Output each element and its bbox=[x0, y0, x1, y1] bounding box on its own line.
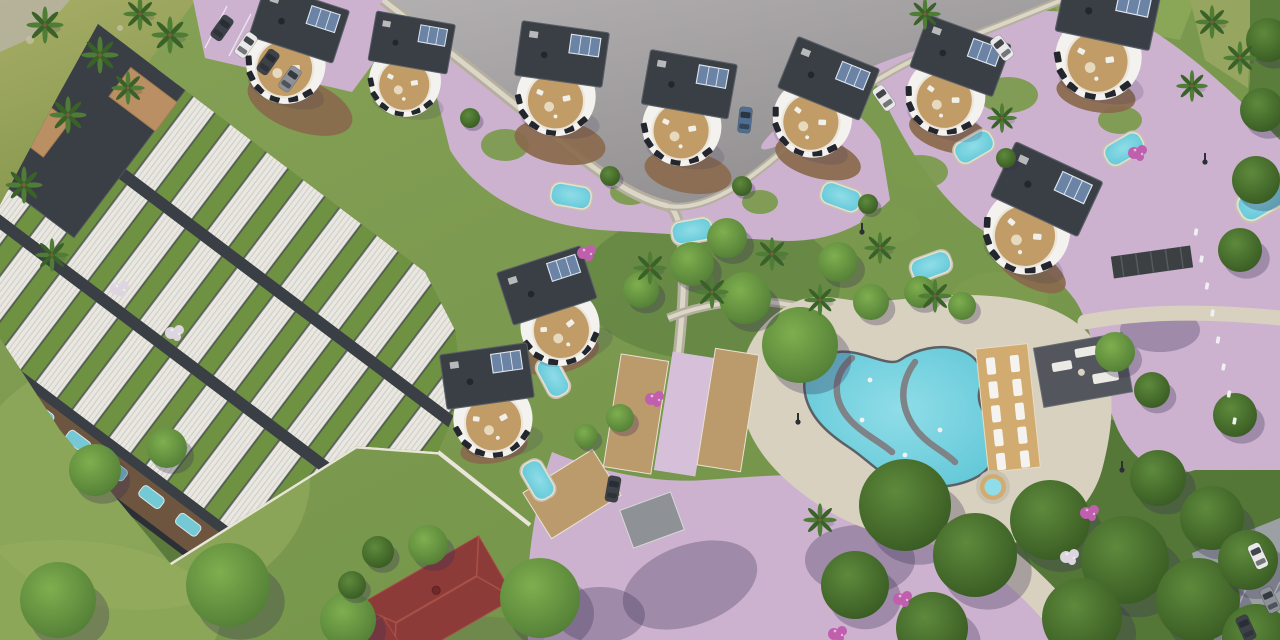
palm-tree bbox=[695, 275, 728, 308]
swimmer bbox=[903, 453, 908, 458]
palm-tree bbox=[1195, 5, 1228, 38]
palm-tree bbox=[918, 279, 951, 312]
palm-tree bbox=[6, 167, 43, 204]
jacuzzi bbox=[976, 470, 1010, 504]
site-plan-svg bbox=[0, 0, 1280, 640]
car bbox=[737, 106, 753, 133]
palm-tree bbox=[50, 97, 87, 134]
palm-tree bbox=[755, 237, 788, 270]
stone-path-east bbox=[1085, 313, 1280, 322]
aerial-resort-masterplan-render bbox=[0, 0, 1280, 640]
palm-tree bbox=[633, 251, 666, 284]
palm-tree bbox=[1176, 70, 1207, 101]
palm-tree bbox=[82, 37, 119, 74]
palm-tree bbox=[35, 238, 68, 271]
palm-tree bbox=[1223, 41, 1256, 74]
swimmer bbox=[860, 418, 865, 423]
palm-tree bbox=[803, 503, 836, 536]
palm-tree bbox=[987, 103, 1017, 133]
palm-tree bbox=[804, 284, 835, 315]
palm-tree bbox=[111, 71, 144, 104]
swimmer bbox=[868, 378, 873, 383]
palm-tree bbox=[152, 17, 189, 54]
palm-tree bbox=[27, 7, 64, 44]
swimmer bbox=[938, 428, 943, 433]
palm-tree bbox=[864, 232, 895, 263]
